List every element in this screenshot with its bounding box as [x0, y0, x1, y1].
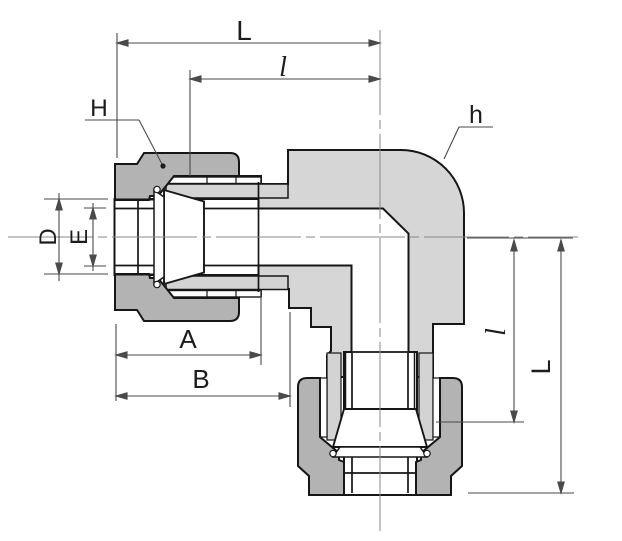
- svg-text:l: l: [279, 52, 287, 83]
- svg-text:D: D: [35, 228, 62, 245]
- svg-text:A: A: [179, 324, 197, 354]
- svg-text:E: E: [66, 229, 93, 245]
- svg-text:L: L: [236, 15, 252, 46]
- svg-text:l: l: [481, 328, 512, 336]
- svg-text:h: h: [469, 101, 483, 129]
- svg-text:B: B: [192, 364, 209, 394]
- svg-text:L: L: [526, 359, 556, 374]
- svg-text:H: H: [90, 95, 108, 122]
